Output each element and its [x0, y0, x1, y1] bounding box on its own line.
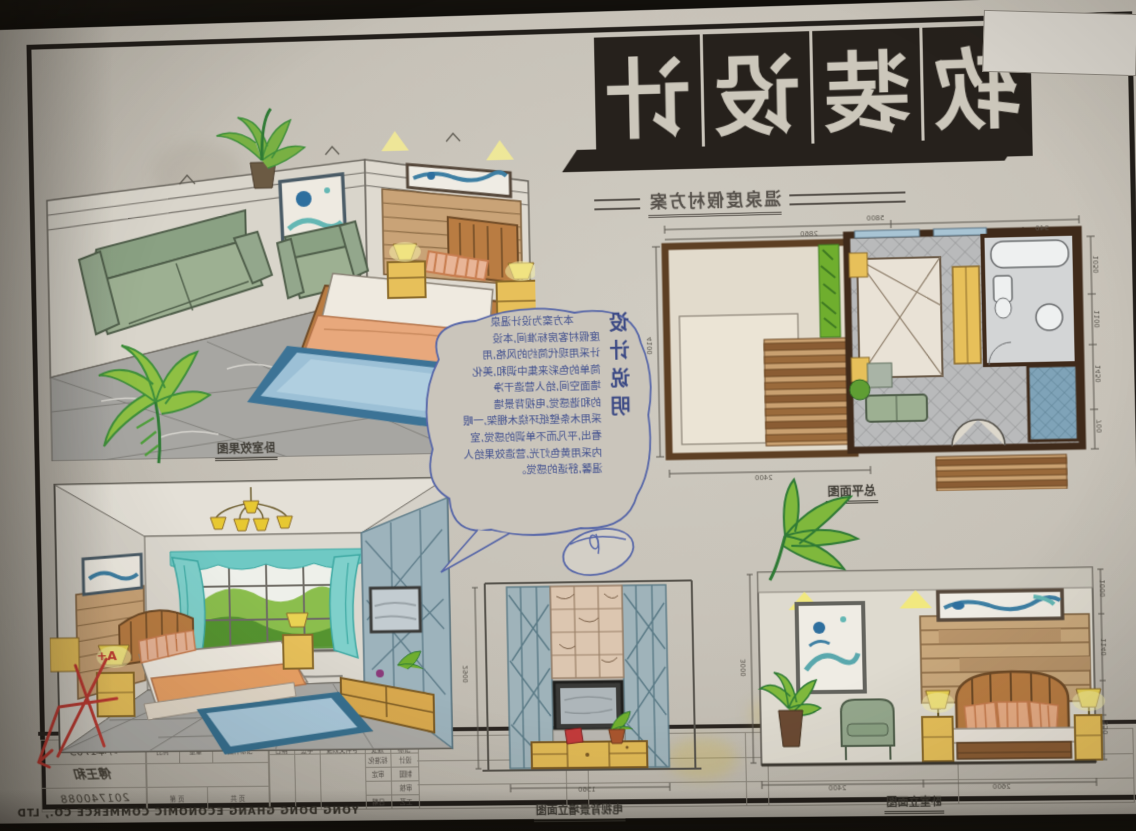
note-line: 温馨,舒适的感觉。 — [464, 461, 603, 480]
note-line: 看出,平凡而不单调的感觉,室 — [463, 428, 602, 447]
fp-dim-top-right: 940 — [1035, 224, 1049, 232]
tv-wall-elevation-drawing: 2900 1560 — [467, 562, 715, 813]
label-bedroom-elevation-wrap: 卧室立面图 — [884, 790, 944, 814]
main-title-logotype: 软 装 设 计 — [581, 18, 1033, 183]
grade-mark-text: A+ — [96, 649, 117, 664]
palm-leaves-sketch-left — [96, 332, 215, 471]
entry-student-id: 201740088 — [59, 791, 129, 806]
bed-dim-right-3: 350 — [1101, 721, 1109, 735]
subtitle-text: 温泉度假村方案 — [648, 185, 782, 218]
logo-char-2: 装 — [812, 28, 922, 162]
label-bedroom-rendering-wrap: 卧室效果图 — [215, 437, 278, 461]
fp-dim-right-3: 1450 — [1094, 365, 1103, 383]
fp-dim-right-4: 700 — [1095, 419, 1103, 433]
fp-dim-right-2: 1100 — [1093, 310, 1102, 328]
palm-leaves-sketch-middle — [754, 474, 867, 600]
fp-dim-right-1: 1050 — [1092, 255, 1101, 273]
bed-dim-right-2: 1140 — [1100, 638, 1109, 656]
label-bedroom-rendering: 卧室效果图 — [215, 439, 278, 461]
tv-dim-width: 1560 — [578, 786, 596, 794]
bed-dim-height: 3000 — [739, 659, 747, 677]
tv-dim-height: 2900 — [462, 665, 470, 683]
photo-of-drawing-board: 卧室效果图 软 装 设 计 温泉度假村方案 — [0, 0, 1136, 831]
logo-char-3: 设 — [703, 31, 812, 164]
design-notes-body: 本方案为设计温泉 度假村客房标准间,本设 计采用现代简约的风格,用 简单的色彩来… — [461, 312, 604, 526]
cell-date2: 日期 — [368, 796, 390, 806]
design-notes-heading: 设计说明 — [605, 311, 638, 523]
cell-approval: 审定 — [367, 769, 389, 779]
subtitle-rule-right — [594, 198, 640, 210]
sheet-footer-company: YONG DONG GHANG ECONOMIC COMMERCE CO., L… — [0, 805, 359, 820]
bed-dim-width-left: 2400 — [828, 784, 846, 792]
drawing-sheet: 卧室效果图 软 装 设 计 温泉度假村方案 — [0, 0, 1136, 824]
cell-craft: 工艺 — [395, 796, 417, 806]
red-grade-mark: A+ — [21, 649, 140, 782]
cell-page-no: 第 页 — [170, 795, 185, 803]
bed-dim-width-right: 2600 — [992, 783, 1010, 791]
floor-plan-drawing: 5800 2860 940 4100 2400 1050 1100 1450 7… — [649, 211, 1103, 496]
design-notes-content: 设计说明 本方案为设计温泉 度假村客房标准间,本设 计采用现代简约的风格,用 简… — [422, 311, 638, 526]
label-bedroom-elevation: 卧室立面图 — [884, 793, 944, 814]
fp-dim-top-left: 2860 — [800, 230, 818, 238]
bed-dim-right-1: 1000 — [1099, 579, 1108, 597]
cell-review: 审核 — [395, 782, 417, 792]
company-name-text: YONG DONG GHANG ECONOMIC COMMERCE CO., L… — [16, 805, 359, 820]
cell-draft: 制图 — [395, 768, 417, 778]
logo-char-4: 计 — [594, 34, 702, 167]
background-sheet-corner — [982, 10, 1136, 76]
label-tv-wall-elevation: 电视背景墙立面图 — [534, 801, 626, 822]
computer-mouse-sketch — [548, 515, 649, 590]
cell-page-total: 共 页 — [230, 795, 245, 803]
subtitle-rule-left — [789, 191, 905, 205]
label-tv-wall-elevation-wrap: 电视背景墙立面图 — [534, 798, 626, 822]
fp-dim-top-total: 5800 — [866, 214, 884, 222]
